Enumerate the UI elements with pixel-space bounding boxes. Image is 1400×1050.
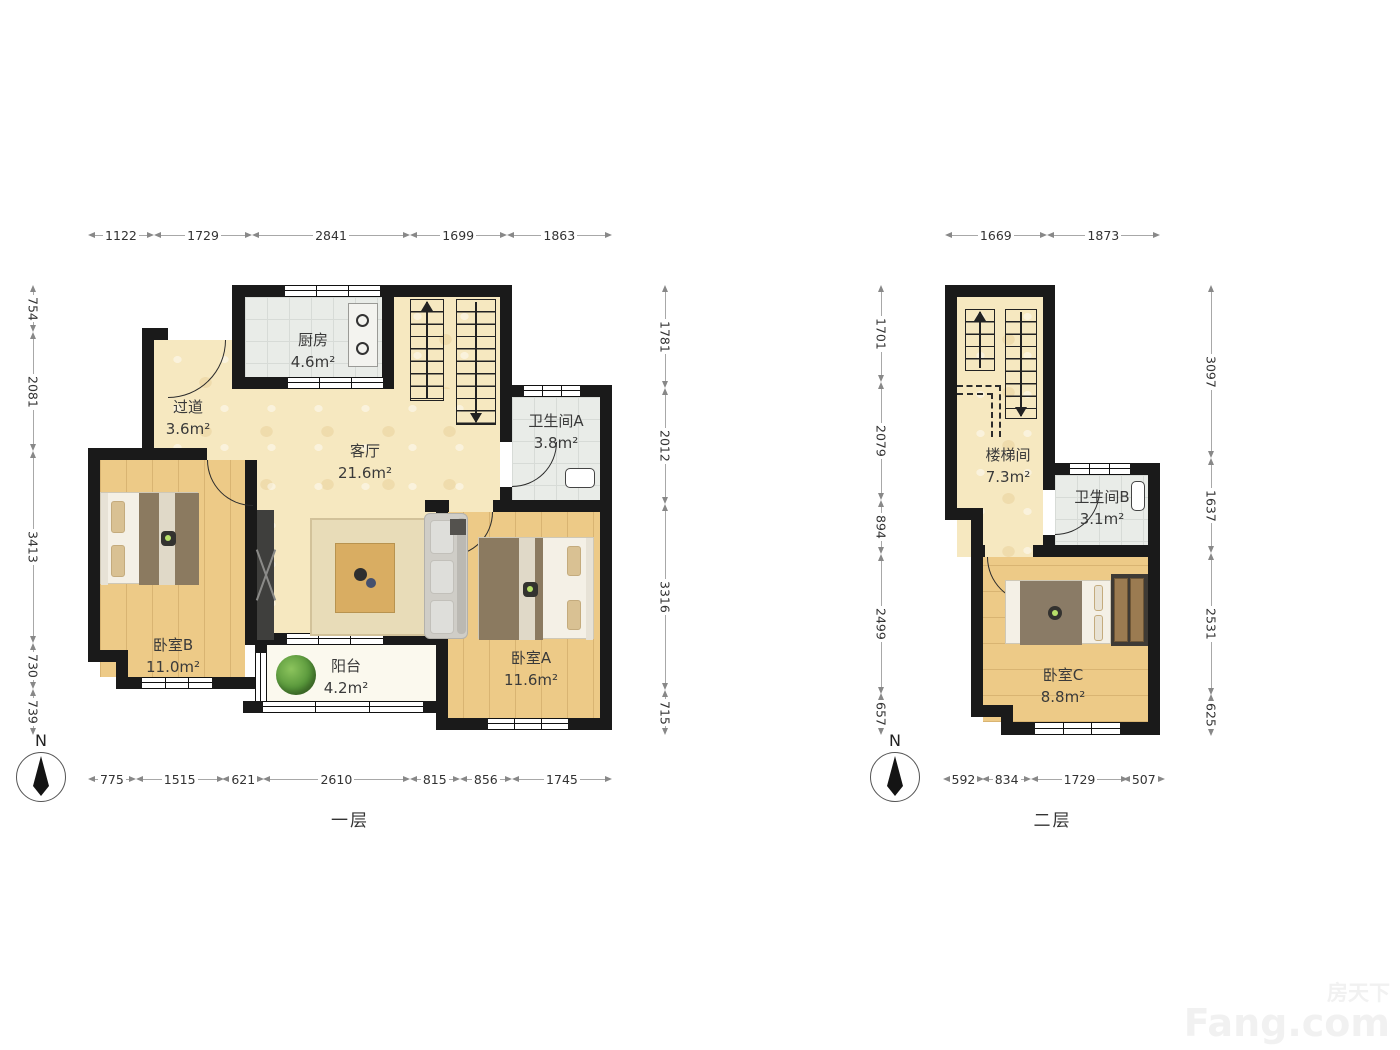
dim-value: 621	[229, 772, 257, 787]
dim-segment: 815	[410, 771, 460, 787]
floor2-dims-bottom: 592 834 1729 507	[945, 770, 1160, 788]
wall	[493, 500, 612, 512]
north-needle-icon	[33, 756, 49, 786]
floor1-dims-top: 1122 1729 2841 1699 1863	[88, 226, 612, 244]
window	[1035, 722, 1120, 735]
compass-north-label: N	[12, 733, 70, 749]
dim-value: 2531	[1204, 606, 1219, 642]
bed-bedroom-a	[478, 537, 594, 639]
wardrobe	[1111, 574, 1148, 646]
dim-segment: 2499	[873, 554, 889, 694]
dim-segment: 2012	[657, 388, 673, 504]
room-label-bedroom-c: 卧室C 8.8m²	[1008, 665, 1118, 709]
stairs-up	[965, 309, 995, 371]
room-label-living: 客厅 21.6m²	[310, 441, 420, 485]
dim-value: 2081	[26, 374, 41, 410]
dim-value: 1122	[103, 228, 139, 243]
room-area: 3.1m²	[1047, 509, 1157, 531]
sofa-cushion	[430, 600, 454, 634]
dim-segment: 1729	[154, 227, 252, 243]
room-name: 客厅	[310, 441, 420, 463]
pillow	[567, 546, 581, 576]
wall	[232, 285, 245, 389]
wall	[945, 285, 1055, 297]
floor1-dims-right: 1781 2012 3316 715	[656, 285, 674, 735]
room-label-bedroom-b: 卧室B 11.0m²	[118, 635, 228, 679]
floor2-plan: 楼梯间 7.3m² 卫生间B 3.1m² 卧室C 8.8m²	[945, 285, 1160, 735]
dim-value: 3097	[1204, 354, 1219, 390]
dim-segment: 1637	[1203, 458, 1219, 552]
room-area: 4.6m²	[258, 352, 368, 374]
dim-value: 815	[421, 772, 449, 787]
dim-value: 1515	[162, 772, 198, 787]
dim-value: 1863	[541, 228, 577, 243]
north-needle-icon	[887, 756, 903, 786]
room-area: 3.8m²	[501, 433, 611, 455]
room-name: 卧室C	[1008, 665, 1118, 687]
dim-segment: 2841	[252, 227, 410, 243]
wall	[1043, 545, 1160, 557]
dim-value: 730	[26, 652, 41, 680]
wall	[500, 285, 512, 397]
wall	[88, 448, 207, 460]
dim-value: 715	[658, 699, 673, 727]
dim-segment: 507	[1128, 771, 1160, 787]
sofa-cushion	[430, 560, 454, 594]
dim-value: 2610	[318, 772, 354, 787]
dim-segment: 1122	[88, 227, 154, 243]
compass-icon	[870, 752, 920, 802]
room-label-bathroom-a: 卫生间A 3.8m²	[501, 411, 611, 455]
dim-value: 1699	[440, 228, 476, 243]
dim-segment: 1781	[657, 285, 673, 388]
pillow	[111, 545, 125, 577]
floor1-plan: 厨房 4.6m² 过道 3.6m² 客厅 21.6m² 卫生间A 3.8m² 卧…	[88, 285, 612, 735]
coffee-table	[335, 543, 395, 613]
dim-segment: 856	[460, 771, 512, 787]
dim-value: 1701	[874, 316, 889, 352]
dim-segment: 3413	[25, 451, 41, 643]
dim-segment: 657	[873, 694, 889, 735]
bed-headboard	[101, 493, 108, 585]
sliding-door	[288, 377, 383, 389]
dim-value: 2079	[874, 423, 889, 459]
room-label-bathroom-b: 卫生间B 3.1m²	[1047, 487, 1157, 531]
dim-value: 1729	[1062, 772, 1098, 787]
sofa-back	[457, 518, 466, 634]
dim-segment: 2610	[263, 771, 410, 787]
dim-segment: 621	[224, 771, 264, 787]
dim-value: 1669	[978, 228, 1014, 243]
north-needle-base	[33, 786, 49, 796]
floor2-dims-top: 1669 1873	[945, 226, 1160, 244]
dim-segment: 1863	[507, 227, 612, 243]
wardrobe-panel	[1114, 578, 1128, 642]
dim-segment: 730	[25, 643, 41, 689]
north-needle-base	[887, 786, 903, 796]
dim-value: 1873	[1085, 228, 1121, 243]
dim-value: 775	[98, 772, 126, 787]
bed-decor	[161, 531, 176, 546]
dim-value: 592	[950, 772, 978, 787]
wall	[971, 545, 985, 557]
room-name: 厨房	[258, 330, 368, 352]
room-area: 11.0m²	[118, 657, 228, 679]
room-area: 3.6m²	[133, 419, 243, 441]
bed-decor	[523, 582, 538, 597]
window	[524, 385, 580, 397]
bed-bedroom-b	[100, 492, 198, 584]
window	[285, 285, 380, 297]
dim-segment: 1701	[873, 285, 889, 382]
dim-segment: 834	[982, 771, 1032, 787]
room-name: 过道	[133, 397, 243, 419]
wall	[1033, 545, 1043, 557]
nightstand	[450, 519, 466, 535]
room-label-bedroom-a: 卧室A 11.6m²	[476, 648, 586, 692]
floor1-dims-left: 754 2081 3413 730 739	[24, 285, 42, 735]
dim-segment: 2531	[1203, 553, 1219, 696]
pillow	[1094, 585, 1103, 611]
dim-value: 3413	[26, 529, 41, 565]
bed-decor	[1048, 606, 1062, 620]
dim-segment: 739	[25, 689, 41, 735]
dim-value: 834	[993, 772, 1021, 787]
stairs-down	[1005, 309, 1037, 419]
window	[255, 653, 267, 701]
wall	[88, 448, 100, 662]
dim-segment: 625	[1203, 695, 1219, 735]
bed-headboard	[586, 538, 593, 640]
dim-segment: 2081	[25, 332, 41, 451]
dim-value: 1781	[658, 319, 673, 355]
dim-value: 3316	[658, 579, 673, 615]
room-name: 卫生间B	[1047, 487, 1157, 509]
floor2-dims-right: 3097 1637 2531 625	[1202, 285, 1220, 735]
pillow	[567, 600, 581, 630]
dim-segment: 775	[88, 771, 136, 787]
room-name: 卫生间A	[501, 411, 611, 433]
dim-value: 754	[26, 295, 41, 323]
room-label-stairwell: 楼梯间 7.3m²	[953, 445, 1063, 489]
compass-icon	[16, 752, 66, 802]
floor2-dims-left: 1701 2079 894 2499 657	[872, 285, 890, 735]
floor1-dims-bottom: 775 1515 621 2610 815 856 1745	[88, 770, 612, 788]
dim-segment: 3316	[657, 504, 673, 691]
wardrobe-panel	[1130, 578, 1144, 642]
dim-value: 894	[874, 513, 889, 541]
room-name: 楼梯间	[953, 445, 1063, 467]
bed-bedroom-c	[1005, 580, 1111, 644]
dim-segment: 3097	[1203, 285, 1219, 458]
wall	[1043, 285, 1055, 463]
stair-cut-dashed-line	[957, 393, 993, 437]
dim-value: 1637	[1204, 488, 1219, 524]
dim-segment: 1873	[1047, 227, 1160, 243]
room-name: 阳台	[291, 656, 401, 678]
dim-value: 507	[1130, 772, 1158, 787]
compass-north-label: N	[866, 733, 924, 749]
compass-floor1: N	[12, 733, 70, 802]
window	[488, 718, 568, 730]
room-area: 8.8m²	[1008, 687, 1118, 709]
toilet-icon	[565, 468, 595, 488]
window	[1070, 463, 1130, 475]
room-label-hallway: 过道 3.6m²	[133, 397, 243, 441]
pillow	[111, 501, 125, 533]
room-name: 卧室B	[118, 635, 228, 657]
room-area: 4.2m²	[291, 678, 401, 700]
room-label-balcony: 阳台 4.2m²	[291, 656, 401, 700]
dim-value: 625	[1204, 701, 1219, 729]
wall	[382, 297, 394, 389]
dim-segment: 1699	[410, 227, 507, 243]
room-label-kitchen: 厨房 4.6m²	[258, 330, 368, 374]
floor1-caption: 一层	[88, 806, 612, 831]
stairs-up	[410, 299, 444, 401]
window	[142, 677, 212, 689]
dim-value: 739	[26, 698, 41, 726]
stairs-down	[456, 299, 496, 425]
dim-value: 2012	[658, 428, 673, 464]
floorplan-canvas: 厨房 4.6m² 过道 3.6m² 客厅 21.6m² 卫生间A 3.8m² 卧…	[0, 0, 1400, 1050]
dim-segment: 715	[657, 690, 673, 735]
floor2-caption: 二层	[945, 806, 1160, 831]
dim-value: 2841	[313, 228, 349, 243]
room-area: 21.6m²	[310, 463, 420, 485]
dim-segment: 1729	[1031, 771, 1127, 787]
watermark: 房天下 Fang.com	[1184, 982, 1390, 1044]
dim-segment: 754	[25, 285, 41, 332]
dim-value: 1729	[185, 228, 221, 243]
room-area: 11.6m²	[476, 670, 586, 692]
room-area: 7.3m²	[953, 467, 1063, 489]
dim-value: 657	[874, 700, 889, 728]
dim-segment: 1669	[945, 227, 1047, 243]
watermark-logo: Fang.com	[1184, 1004, 1390, 1044]
tv-cabinet	[257, 510, 274, 640]
dim-segment: 894	[873, 500, 889, 554]
wall	[971, 557, 983, 717]
dim-value: 856	[472, 772, 500, 787]
dim-segment: 1745	[512, 771, 612, 787]
dim-value: 2499	[874, 606, 889, 642]
dim-segment: 592	[945, 771, 982, 787]
compass-floor2: N	[866, 733, 924, 802]
pillow	[1094, 615, 1103, 641]
dim-segment: 1515	[136, 771, 224, 787]
window	[263, 701, 423, 713]
wall	[500, 487, 512, 500]
dim-value: 1745	[544, 772, 580, 787]
room-name: 卧室A	[476, 648, 586, 670]
dim-segment: 2079	[873, 382, 889, 500]
